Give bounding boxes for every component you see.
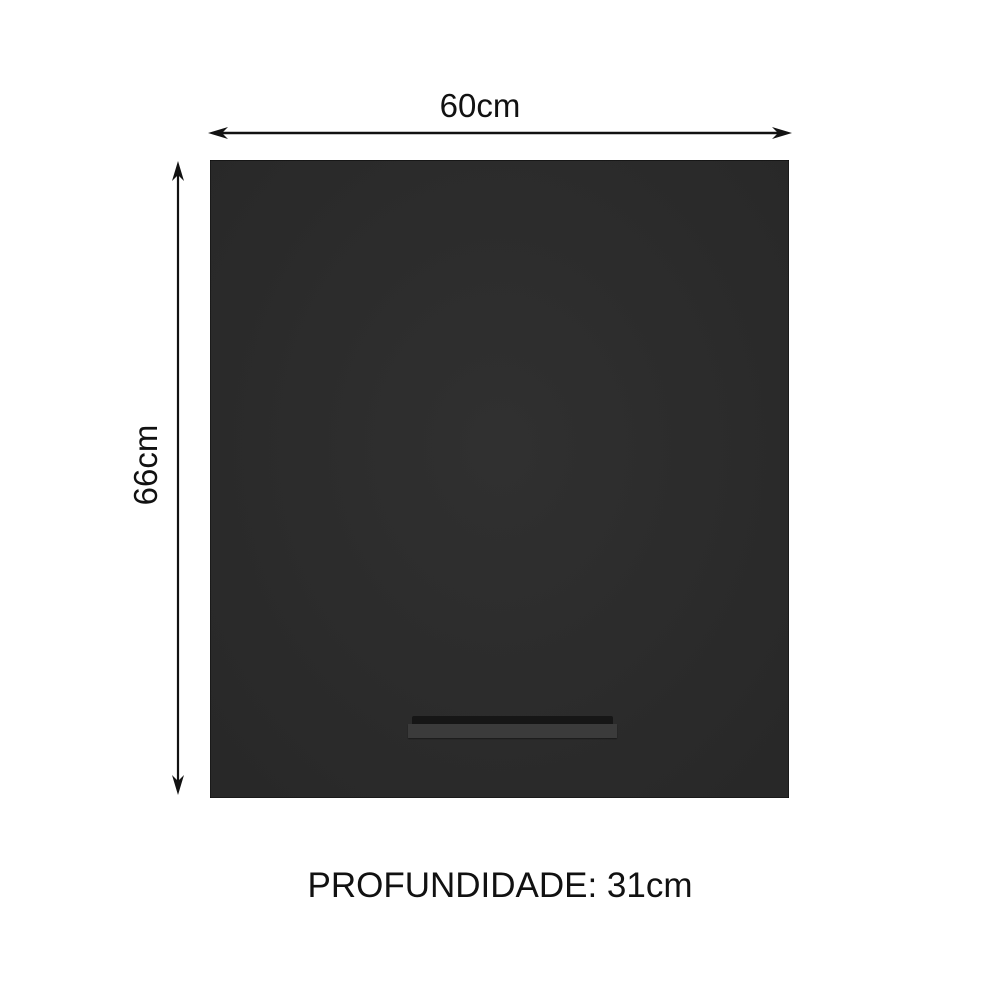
width-double-arrow-icon bbox=[208, 126, 792, 140]
product-dimension-diagram: 60cm 66cm PROFUNDIDADE: 31cm bbox=[0, 0, 1000, 1000]
width-dimension-label: 60cm bbox=[380, 88, 580, 124]
cabinet-handle-bar bbox=[408, 724, 617, 738]
depth-dimension-label: PROFUNDIDADE: 31cm bbox=[0, 866, 1000, 906]
height-double-arrow-icon bbox=[171, 161, 185, 795]
height-dimension-label: 66cm bbox=[128, 405, 164, 525]
cabinet-handle-recess bbox=[412, 716, 613, 724]
cabinet-handle bbox=[408, 716, 617, 738]
cabinet-front-panel bbox=[210, 160, 789, 798]
